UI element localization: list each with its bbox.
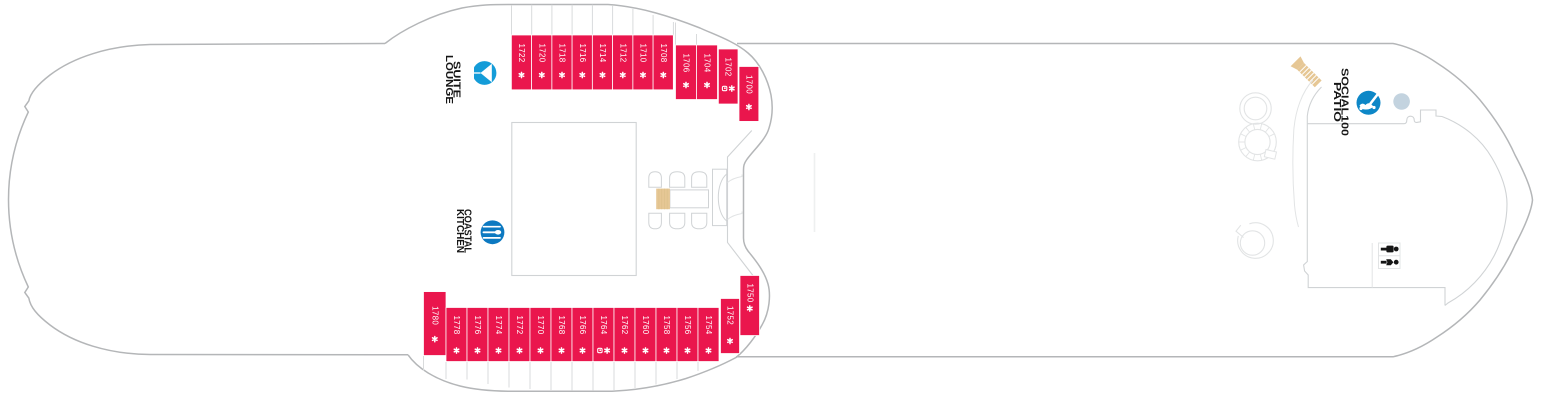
svg-text:1772: 1772 bbox=[515, 316, 524, 335]
svg-text:1716: 1716 bbox=[578, 44, 587, 63]
svg-text:PATIO: PATIO bbox=[1331, 82, 1342, 123]
svg-text:1780: 1780 bbox=[430, 306, 439, 325]
svg-text:1710: 1710 bbox=[639, 44, 648, 63]
svg-text:1700: 1700 bbox=[744, 75, 753, 94]
svg-text:1758: 1758 bbox=[662, 316, 671, 335]
svg-text:1766: 1766 bbox=[578, 316, 587, 335]
svg-text:1718: 1718 bbox=[558, 44, 567, 63]
svg-text:1704: 1704 bbox=[703, 54, 712, 73]
svg-text:1720: 1720 bbox=[537, 44, 546, 63]
svg-text:1752: 1752 bbox=[726, 306, 735, 325]
svg-text:1754: 1754 bbox=[704, 316, 713, 335]
svg-text:KITCHEN: KITCHEN bbox=[454, 209, 465, 253]
svg-text:LOUNGE: LOUNGE bbox=[443, 55, 454, 105]
svg-text:1776: 1776 bbox=[473, 316, 482, 335]
svg-text:1762: 1762 bbox=[620, 316, 629, 335]
svg-text:1756: 1756 bbox=[683, 316, 692, 335]
svg-text:1770: 1770 bbox=[536, 316, 545, 335]
svg-text:1722: 1722 bbox=[517, 44, 526, 63]
svg-text:1708: 1708 bbox=[659, 44, 668, 63]
svg-text:1706: 1706 bbox=[682, 54, 691, 73]
svg-text:1774: 1774 bbox=[494, 316, 503, 335]
svg-text:1750: 1750 bbox=[745, 284, 754, 303]
svg-text:1760: 1760 bbox=[641, 316, 650, 335]
svg-text:1768: 1768 bbox=[557, 316, 566, 335]
svg-text:1712: 1712 bbox=[618, 44, 627, 63]
svg-text:1702: 1702 bbox=[724, 58, 733, 77]
svg-text:1778: 1778 bbox=[452, 316, 461, 335]
svg-text:1764: 1764 bbox=[599, 316, 608, 335]
svg-text:1714: 1714 bbox=[598, 44, 607, 63]
